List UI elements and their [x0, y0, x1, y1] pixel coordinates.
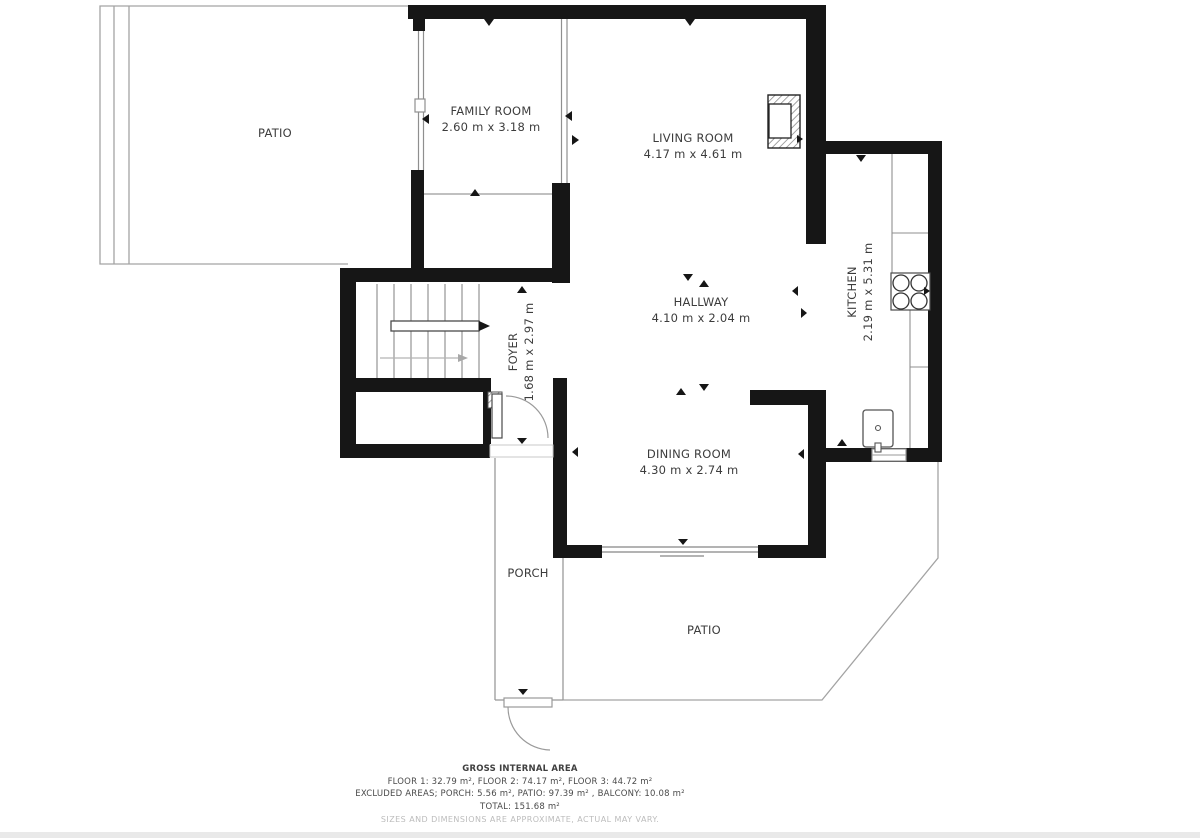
room-label-family-room: FAMILY ROOM 2.60 m x 3.18 m: [442, 103, 541, 135]
room-name: KITCHEN: [844, 266, 860, 318]
floor-plan-drawing: [0, 0, 1200, 838]
family-room-window-icon: [415, 31, 425, 170]
patio-lower-outline: [563, 462, 938, 700]
room-label-patio-upper: PATIO: [258, 125, 292, 141]
porch-door-icon: [504, 698, 552, 750]
area-summary-floors: FLOOR 1: 32.79 m², FLOOR 2: 74.17 m², FL…: [355, 776, 684, 789]
room-dims: 4.17 m x 4.61 m: [644, 146, 743, 162]
area-summary-total: TOTAL: 151.68 m²: [355, 801, 684, 814]
room-name: HALLWAY: [674, 294, 729, 310]
area-summary-disclaimer: SIZES AND DIMENSIONS ARE APPROXIMATE, AC…: [355, 814, 684, 827]
room-label-dining-room: DINING ROOM 4.30 m x 2.74 m: [640, 446, 739, 478]
room-label-hallway: HALLWAY 4.10 m x 2.04 m: [652, 294, 751, 326]
bottom-strip: [0, 832, 1200, 838]
patio-upper-outline: [100, 6, 408, 264]
area-summary-title: GROSS INTERNAL AREA: [355, 763, 684, 776]
room-name: FAMILY ROOM: [450, 103, 531, 119]
room-name: PORCH: [507, 565, 548, 581]
room-dims: 1.68 m x 2.97 m: [521, 303, 537, 402]
living-divider-window-icon: [562, 19, 568, 183]
room-name: PATIO: [258, 125, 292, 141]
sink-icon: [863, 410, 893, 452]
room-label-porch: PORCH: [507, 565, 548, 581]
room-label-patio-lower: PATIO: [687, 622, 721, 638]
stairs-icon: [377, 284, 490, 378]
room-name: FOYER: [505, 333, 521, 372]
room-dims: 4.30 m x 2.74 m: [640, 462, 739, 478]
room-dims: 4.10 m x 2.04 m: [652, 310, 751, 326]
area-summary-excluded: EXCLUDED AREAS; PORCH: 5.56 m², PATIO: 9…: [355, 788, 684, 801]
room-name: DINING ROOM: [647, 446, 731, 462]
area-summary: GROSS INTERNAL AREA FLOOR 1: 32.79 m², F…: [355, 763, 684, 827]
floor-plan: PATIO FAMILY ROOM 2.60 m x 3.18 m LIVING…: [0, 0, 1200, 838]
room-dims: 2.60 m x 3.18 m: [442, 119, 541, 135]
room-name: LIVING ROOM: [652, 130, 733, 146]
room-dims: 2.19 m x 5.31 m: [860, 243, 876, 342]
room-label-kitchen: KITCHEN 2.19 m x 5.31 m: [844, 243, 876, 342]
sliding-door-icon: [602, 547, 758, 556]
room-name: PATIO: [687, 622, 721, 638]
room-label-foyer: FOYER 1.68 m x 2.97 m: [505, 303, 537, 402]
front-door-icon: [488, 392, 553, 457]
room-label-living-room: LIVING ROOM 4.17 m x 4.61 m: [644, 130, 743, 162]
fireplace-icon: [768, 95, 800, 148]
